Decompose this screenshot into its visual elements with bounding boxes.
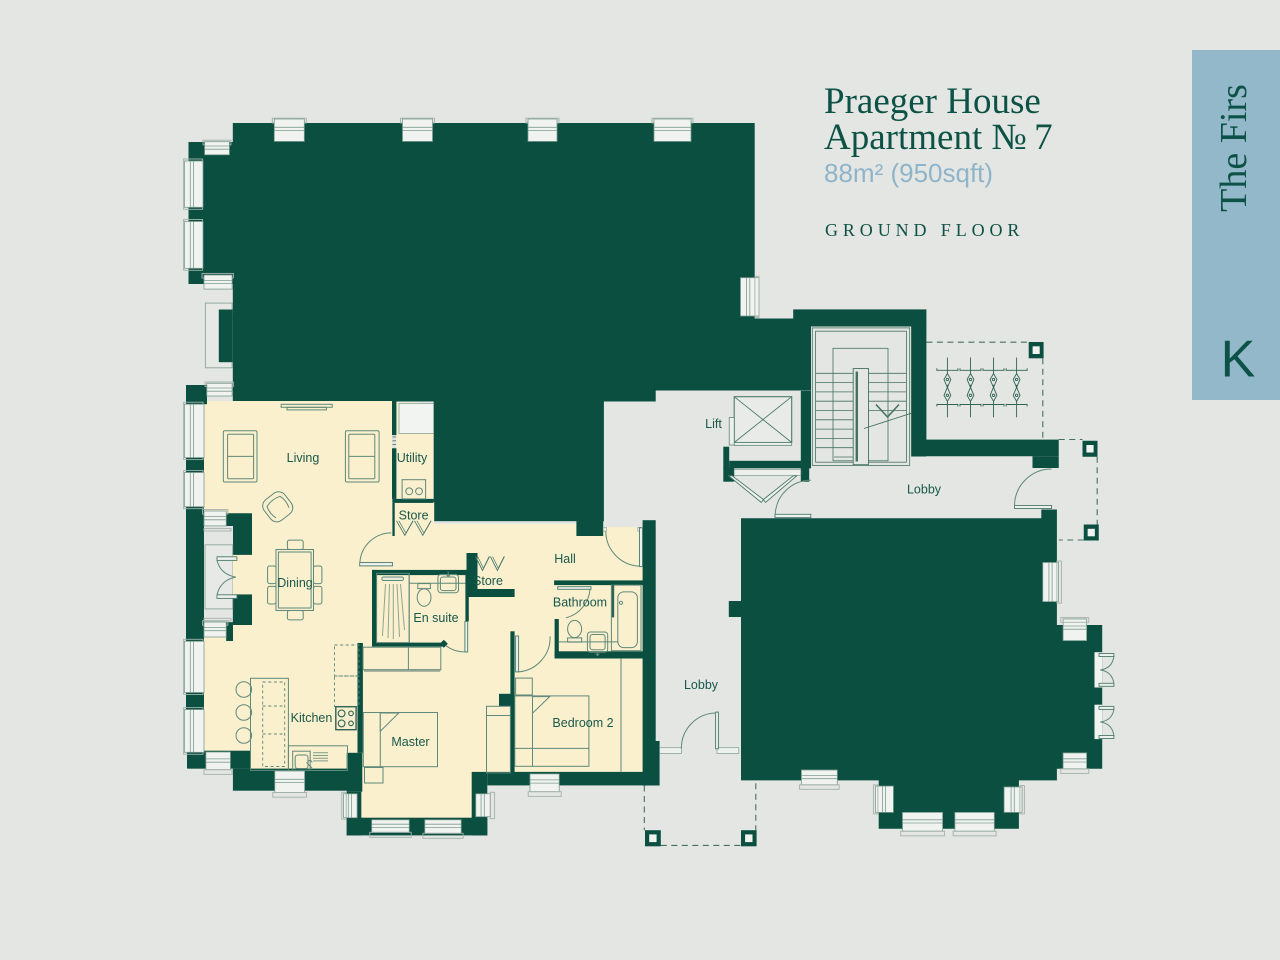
svg-text:Store: Store xyxy=(473,574,503,588)
svg-text:Kitchen: Kitchen xyxy=(291,711,333,725)
svg-text:Bedroom 2: Bedroom 2 xyxy=(552,716,613,730)
svg-text:Lift: Lift xyxy=(705,417,722,431)
svg-text:Apartment № 7: Apartment № 7 xyxy=(824,117,1053,158)
svg-text:Living: Living xyxy=(287,451,320,465)
svg-text:Store: Store xyxy=(399,509,429,523)
svg-text:Dining: Dining xyxy=(277,576,312,590)
svg-text:88m² (950sqft): 88m² (950sqft) xyxy=(824,158,993,188)
svg-text:Master: Master xyxy=(391,735,429,749)
svg-text:Bathroom: Bathroom xyxy=(553,595,607,609)
svg-text:Praeger House: Praeger House xyxy=(824,81,1041,122)
svg-text:En suite: En suite xyxy=(413,611,458,625)
svg-text:GROUND FLOOR: GROUND FLOOR xyxy=(825,220,1024,240)
svg-text:Hall: Hall xyxy=(554,552,576,566)
svg-text:Lobby: Lobby xyxy=(907,482,942,496)
svg-text:The Firs: The Firs xyxy=(1213,84,1255,212)
svg-text:Utility: Utility xyxy=(397,451,428,465)
svg-text:Lobby: Lobby xyxy=(684,678,719,692)
svg-text:K: K xyxy=(1221,331,1256,389)
